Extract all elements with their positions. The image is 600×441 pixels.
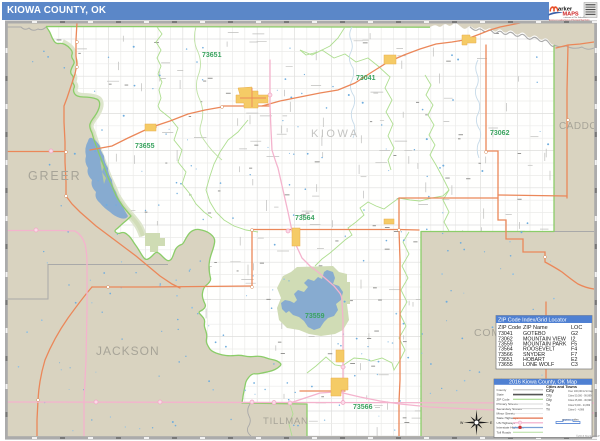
svg-text:73566: 73566 xyxy=(353,404,373,411)
svg-text:Tn: Tn xyxy=(546,407,550,411)
svg-text:73655: 73655 xyxy=(498,362,513,368)
svg-text:LOC: LOC xyxy=(571,325,582,331)
svg-text:LONE WOLF: LONE WOLF xyxy=(523,362,555,368)
svg-text:State: State xyxy=(497,393,505,397)
svg-text:America's Leading Source of Mu: America's Leading Source of Municipal Ma… xyxy=(549,18,590,21)
svg-text:Cities 25,000 - 49,999: Cities 25,000 - 49,999 xyxy=(568,399,592,402)
svg-text:approx. miles: approx. miles xyxy=(562,417,579,421)
svg-text:City: City xyxy=(546,394,552,398)
svg-text:Cities 50,000 - 99,999: Cities 50,000 - 99,999 xyxy=(568,395,592,398)
svg-text:73651: 73651 xyxy=(202,52,222,59)
svg-text:C3: C3 xyxy=(571,362,578,368)
svg-text:73655: 73655 xyxy=(135,143,155,150)
svg-text:ZIP Code Index/Grid Locator: ZIP Code Index/Grid Locator xyxy=(498,318,567,324)
svg-text:County: County xyxy=(497,388,507,392)
svg-text:73062: 73062 xyxy=(490,130,510,137)
svg-text:Cities 0 - 4,999: Cities 0 - 4,999 xyxy=(568,408,585,411)
svg-text:Minor Streets: Minor Streets xyxy=(497,412,516,416)
svg-text:Tn: Tn xyxy=(546,403,550,407)
svg-text:73559: 73559 xyxy=(305,313,325,320)
svg-text:Cities 5,000 - 24,999: Cities 5,000 - 24,999 xyxy=(568,404,591,407)
svg-text:TILLMAN: TILLMAN xyxy=(263,416,309,427)
svg-text:ZIP Code: ZIP Code xyxy=(497,397,510,401)
svg-text:City: City xyxy=(546,398,552,402)
svg-text:City: City xyxy=(546,388,555,393)
svg-text:JACKSON: JACKSON xyxy=(96,344,160,358)
svg-text:KIOWA: KIOWA xyxy=(311,128,360,140)
svg-text:US Highways: US Highways xyxy=(497,421,516,425)
svg-text:CADDO: CADDO xyxy=(559,121,598,132)
svg-text:GREER: GREER xyxy=(28,169,81,183)
svg-text:Over 100,000 & St Cap: Over 100,000 & St Cap xyxy=(568,390,593,393)
svg-text:©2016 MarketMAPS: ©2016 MarketMAPS xyxy=(576,434,600,438)
svg-text:73041: 73041 xyxy=(356,75,376,82)
svg-text:ZIP Code: ZIP Code xyxy=(498,325,521,331)
svg-text:ZIP Name: ZIP Name xyxy=(523,325,548,331)
svg-text:Toll Roads: Toll Roads xyxy=(497,430,512,434)
svg-text:73564: 73564 xyxy=(295,215,315,222)
